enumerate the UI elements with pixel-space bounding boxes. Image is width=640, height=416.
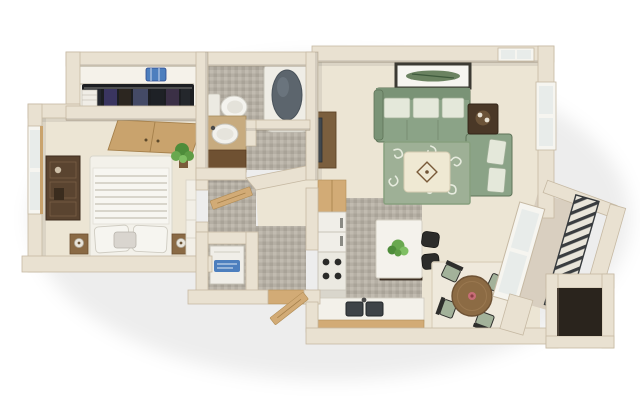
sofa-pillow — [413, 98, 439, 118]
faucet — [211, 126, 215, 130]
sofa-pillow — [384, 98, 410, 118]
kitchen-island — [376, 220, 422, 280]
wall-shade — [205, 52, 208, 180]
chaise-pillow — [486, 139, 506, 165]
bar-stool — [421, 231, 440, 248]
wall — [66, 52, 318, 66]
floor-plan-rendering: 3D floor plan rendering of a one-bedroom… — [0, 0, 640, 416]
burner — [335, 259, 342, 266]
bedroom-wall-shelf — [186, 180, 196, 256]
wall — [306, 302, 318, 332]
wall-shade — [66, 64, 318, 67]
sink-basin — [366, 302, 383, 316]
storage-bin — [146, 68, 166, 81]
chaise-pillow — [487, 167, 506, 192]
bed-pillow — [132, 225, 167, 253]
storage-closet-interior — [558, 288, 602, 336]
storage-closet — [546, 274, 614, 348]
wall — [196, 168, 246, 180]
kitchen-faucet — [362, 298, 367, 303]
appliance-label — [214, 260, 240, 272]
dining-table — [452, 276, 492, 316]
bed — [90, 156, 172, 258]
pantry-cabinet — [318, 180, 346, 212]
bedroom-window — [28, 126, 43, 214]
living-right-window — [536, 82, 556, 150]
ottoman — [404, 152, 450, 192]
sink-basin — [346, 302, 363, 316]
corner-end-table — [468, 104, 498, 134]
sink-counter — [318, 298, 424, 332]
nightstand-left — [70, 234, 88, 254]
wall — [196, 180, 208, 190]
wall-shade — [315, 52, 318, 180]
burner — [335, 273, 342, 280]
wall-shade — [66, 118, 208, 121]
folded-towels — [82, 90, 97, 108]
burner — [323, 273, 330, 280]
utility-appliance — [210, 246, 244, 284]
refrigerator — [318, 212, 346, 252]
duvet-stripes — [95, 176, 167, 218]
dresser — [46, 156, 80, 220]
sofa-pillow — [442, 98, 464, 118]
stove-range — [318, 252, 346, 298]
wall — [188, 290, 268, 304]
floor-plan-image: 3D floor plan rendering of a one-bedroom… — [0, 0, 640, 416]
entry-floor — [256, 226, 306, 292]
vanity-sink — [204, 116, 246, 172]
framed-artwork — [396, 64, 470, 88]
living-top-window — [498, 48, 534, 61]
wall — [22, 256, 212, 272]
wall — [66, 106, 208, 120]
burner — [323, 259, 330, 266]
wall — [306, 188, 318, 250]
accent-pillow — [114, 232, 136, 248]
